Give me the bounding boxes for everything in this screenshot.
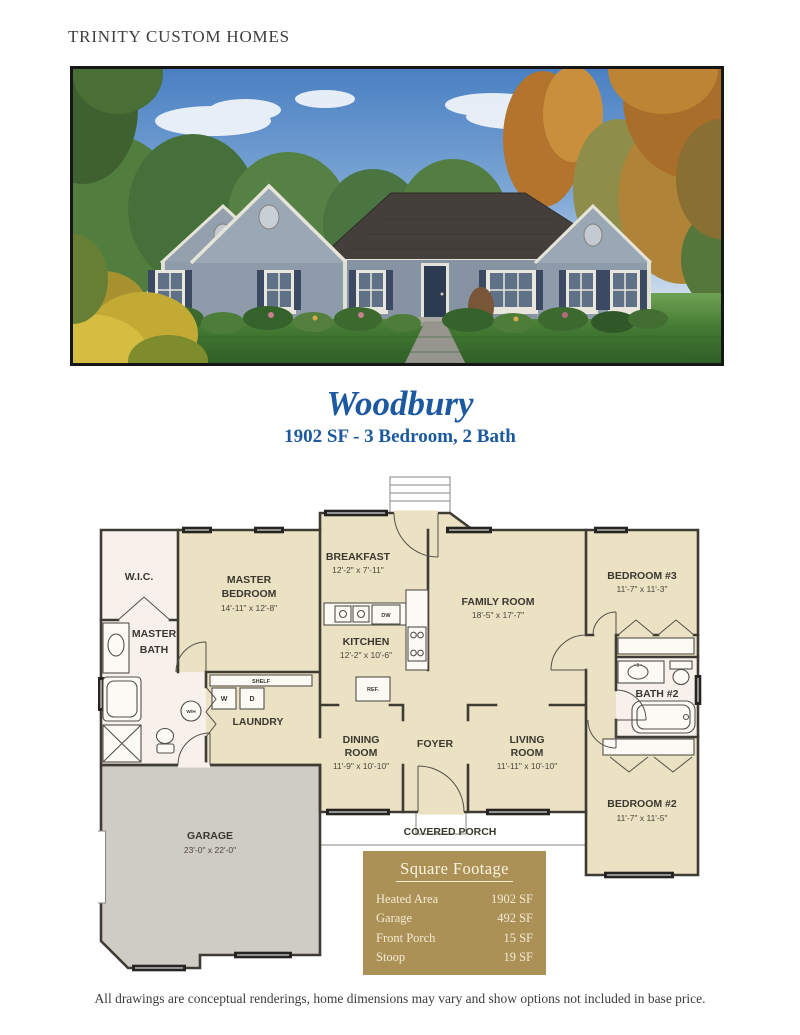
square-footage-table: Square Footage Heated Area 1902 SF Garag… — [363, 851, 546, 975]
washer-label: W — [221, 696, 228, 703]
page-title: Woodbury — [0, 386, 800, 423]
master-bedroom-dims: 14'-11" x 12'-8" — [221, 603, 277, 613]
kitchen-dims: 12'-2" x 10'-6" — [340, 650, 392, 660]
bedroom2-label: BEDROOM #2 — [607, 798, 677, 810]
page-subtitle: 1902 SF - 3 Bedroom, 2 Bath — [0, 426, 800, 448]
water-heater-label: W/H — [186, 709, 196, 715]
covered-porch-label: COVERED PORCH — [404, 826, 497, 838]
table-row: Garage 492 SF — [376, 909, 533, 928]
table-row: Front Porch 15 SF — [376, 929, 533, 948]
row-label: Front Porch — [376, 929, 435, 948]
breakfast-dims: 12'-2" x 7'-11" — [332, 565, 384, 575]
row-label: Garage — [376, 909, 412, 928]
svg-text:BATH: BATH — [140, 644, 168, 656]
table-row: Stoop 19 SF — [376, 948, 533, 967]
wic-label: W.I.C. — [125, 571, 154, 583]
laundry-label: LAUNDRY — [233, 716, 284, 728]
row-value: 492 SF — [497, 909, 533, 928]
row-label: Heated Area — [376, 890, 438, 909]
breakfast-label: BREAKFAST — [326, 551, 391, 563]
row-value: 19 SF — [503, 948, 533, 967]
table-row: Heated Area 1902 SF — [376, 890, 533, 909]
family-room-dims: 18'-5" x 17'-7" — [472, 610, 524, 620]
house-illustration — [73, 69, 721, 363]
shelf-label: SHELF — [252, 679, 271, 685]
disclaimer-text: All drawings are conceptual renderings, … — [0, 991, 800, 1007]
living-dims: 11'-11" x 10'-10" — [497, 761, 557, 771]
dishwasher-label: DW — [381, 613, 391, 619]
refrigerator-label: REF. — [367, 687, 379, 693]
dining-label: DINING — [343, 734, 380, 746]
garage-dims: 23'-0" x 22'-0" — [184, 845, 236, 855]
living-label: LIVING — [509, 734, 544, 746]
square-footage-title: Square Footage — [376, 859, 533, 882]
bath2-label: BATH #2 — [636, 688, 679, 700]
title-block: Woodbury 1902 SF - 3 Bedroom, 2 Bath — [0, 386, 800, 448]
master-bath-label: MASTER — [132, 628, 177, 640]
bedroom3-dims: 11'-7" x 11'-3" — [616, 584, 667, 594]
svg-text:BEDROOM: BEDROOM — [222, 588, 277, 600]
row-label: Stoop — [376, 948, 405, 967]
row-value: 1902 SF — [491, 890, 533, 909]
bedroom2-dims: 11'-7" x 11'-5" — [616, 813, 667, 823]
svg-text:ROOM: ROOM — [511, 747, 544, 759]
master-bedroom-label: MASTER — [227, 574, 272, 586]
foyer-label: FOYER — [417, 738, 454, 750]
floor-plan: W.I.C. MASTER BEDROOM 14'-11" x 12'-8" M… — [0, 475, 800, 980]
garage-label: GARAGE — [187, 830, 233, 842]
dryer-label: D — [249, 696, 254, 703]
house-photo — [70, 66, 724, 366]
kitchen-label: KITCHEN — [343, 636, 390, 648]
bedroom3-label: BEDROOM #3 — [607, 570, 677, 582]
brand-header: TRINITY CUSTOM HOMES — [68, 27, 290, 47]
svg-text:ROOM: ROOM — [345, 747, 378, 759]
row-value: 15 SF — [503, 929, 533, 948]
family-room-label: FAMILY ROOM — [462, 596, 535, 608]
dining-dims: 11'-9" x 10'-10" — [333, 761, 389, 771]
